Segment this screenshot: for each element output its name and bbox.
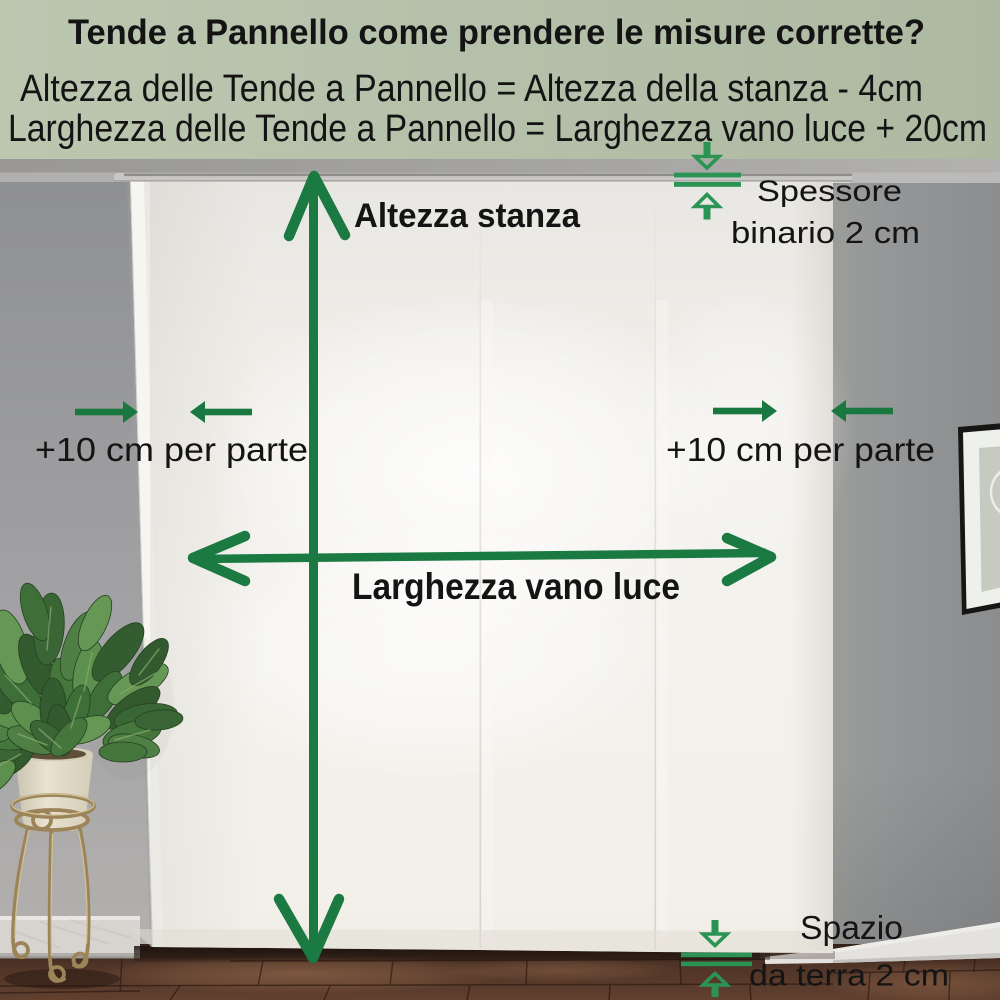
svg-text:Spessore: Spessore	[757, 175, 902, 208]
svg-text:Larghezza delle Tende a Pannel: Larghezza delle Tende a Pannello = Largh…	[8, 108, 987, 150]
svg-text:+10 cm per parte: +10 cm per parte	[666, 431, 935, 468]
svg-text:da terra 2 cm: da terra 2 cm	[749, 958, 949, 993]
svg-text:+10 cm per parte: +10 cm per parte	[35, 431, 308, 468]
svg-text:Altezza stanza: Altezza stanza	[354, 197, 581, 235]
svg-text:binario 2 cm: binario 2 cm	[731, 215, 920, 250]
svg-text:Spazio: Spazio	[800, 909, 903, 946]
svg-text:Larghezza vano luce: Larghezza vano luce	[352, 566, 680, 607]
svg-text:Tende a Pannello come prendere: Tende a Pannello come prendere le misure…	[68, 13, 925, 52]
svg-text:Altezza delle Tende a Pannello: Altezza delle Tende a Pannello = Altezza…	[20, 68, 923, 110]
